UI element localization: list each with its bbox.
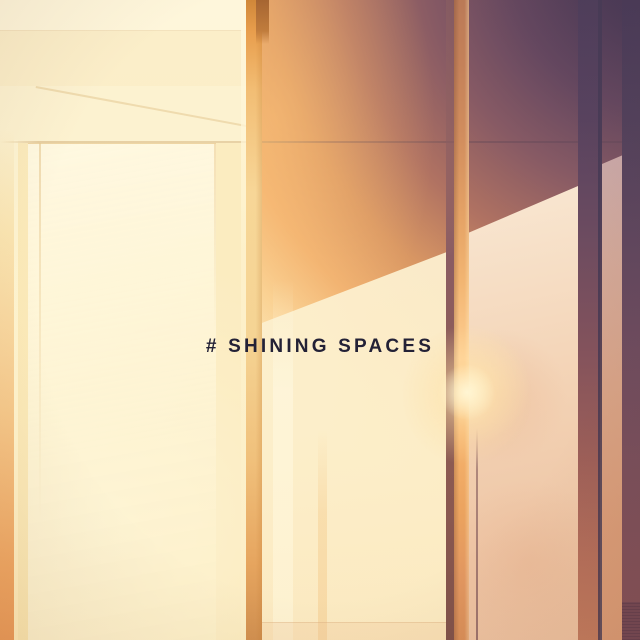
corner-texture-patch [622,602,640,640]
window-bar-far-right [622,0,640,640]
light-reflection-strip-thin [318,430,327,640]
window-bar-dark [578,0,600,640]
panel-edge-line-left [39,143,41,523]
panel-edge-line-right [214,143,216,333]
artwork-title: # SHINING SPACES [0,337,640,356]
window-bar-dark-line [598,0,602,640]
mullion-left-dark-cap [256,0,269,44]
horizontal-seam-line [0,141,640,143]
frosted-glass-panel-left [28,143,216,640]
light-reflection-strip [273,280,293,640]
left-edge-gold-strip [18,143,28,640]
glowing-mullion-right [454,0,469,640]
album-cover-artwork: # SHINING SPACES [0,0,640,640]
left-edge-orange-strip [0,130,14,640]
floor-shadow-line [258,622,468,640]
golden-mullion-left [246,0,262,640]
